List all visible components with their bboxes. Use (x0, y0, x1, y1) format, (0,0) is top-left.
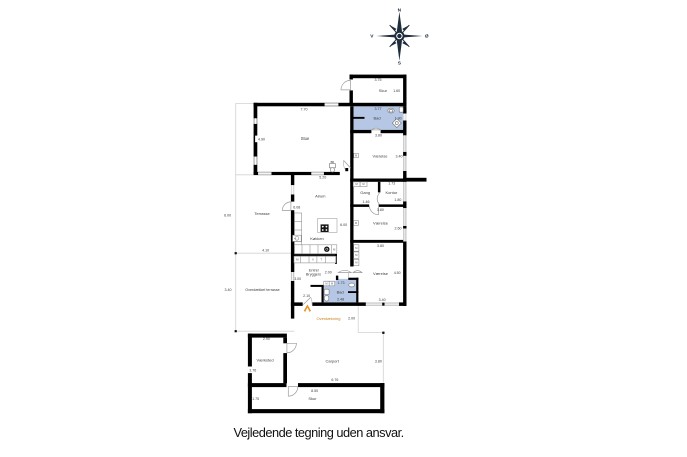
svg-text:3.00: 3.00 (294, 277, 301, 281)
svg-text:Bad: Bad (337, 289, 344, 294)
svg-text:1.60: 1.60 (393, 89, 400, 93)
svg-text:1.73: 1.73 (338, 281, 345, 285)
svg-text:2.00: 2.00 (325, 271, 332, 275)
svg-text:2.90: 2.90 (263, 337, 270, 341)
svg-text:4.50: 4.50 (394, 271, 401, 275)
svg-text:Gang: Gang (360, 190, 370, 195)
svg-text:Entré/: Entré/ (309, 268, 320, 272)
svg-text:M: M (355, 253, 357, 257)
svg-text:M: M (331, 282, 333, 286)
svg-text:3.40: 3.40 (225, 288, 232, 292)
svg-text:3.80: 3.80 (377, 208, 384, 212)
svg-text:7.70: 7.70 (301, 108, 308, 112)
svg-text:Kontor: Kontor (386, 190, 398, 195)
svg-text:Værelse: Værelse (373, 220, 389, 225)
svg-text:6.00: 6.00 (340, 223, 347, 227)
svg-text:3.77: 3.77 (375, 107, 382, 111)
svg-text:2.00: 2.00 (348, 317, 355, 321)
svg-text:Skur: Skur (379, 88, 388, 93)
svg-text:M: M (355, 246, 357, 250)
svg-text:6.76: 6.76 (331, 378, 338, 382)
svg-text:Overdækning: Overdækning (316, 316, 340, 321)
svg-text:3.75: 3.75 (375, 78, 382, 82)
svg-text:1.75: 1.75 (252, 397, 259, 401)
svg-text:M: M (325, 282, 327, 286)
svg-text:Værelse: Værelse (373, 154, 389, 159)
svg-text:8.50: 8.50 (311, 389, 318, 393)
svg-text:T: T (320, 258, 322, 262)
svg-text:Skur: Skur (308, 396, 317, 401)
svg-text:4.90: 4.90 (258, 138, 265, 142)
svg-text:2.10: 2.10 (303, 294, 310, 298)
svg-text:V: V (312, 258, 314, 262)
svg-text:4.10: 4.10 (262, 248, 269, 252)
svg-text:1.90: 1.90 (395, 117, 402, 121)
svg-text:1.73: 1.73 (388, 182, 395, 186)
svg-text:Værelse: Værelse (373, 271, 389, 276)
svg-text:2.48: 2.48 (337, 298, 344, 302)
svg-text:5.20: 5.20 (319, 175, 326, 179)
svg-text:Stue: Stue (301, 136, 310, 141)
svg-text:N: N (398, 8, 402, 14)
svg-text:Køkken: Køkken (310, 236, 324, 241)
svg-text:Vejledende tegning uden ansvar: Vejledende tegning uden ansvar. (233, 425, 403, 440)
svg-text:Bad: Bad (373, 116, 380, 121)
svg-text:3.80: 3.80 (375, 133, 382, 137)
svg-text:Terrasse: Terrasse (254, 211, 270, 216)
svg-text:3.40: 3.40 (379, 298, 386, 302)
svg-text:M: M (355, 221, 357, 225)
svg-text:Carport: Carport (326, 359, 340, 364)
svg-text:BB: BB (331, 160, 335, 164)
svg-text:3.40: 3.40 (396, 155, 403, 159)
svg-text:6.00: 6.00 (224, 213, 231, 217)
svg-text:6.08: 6.08 (293, 205, 300, 209)
svg-text:M: M (356, 182, 358, 186)
svg-text:3.80: 3.80 (375, 360, 382, 364)
svg-text:2.60: 2.60 (395, 227, 402, 231)
svg-text:Værksted: Værksted (256, 357, 273, 362)
svg-text:1.46: 1.46 (363, 200, 370, 204)
svg-text:Bryggers: Bryggers (306, 273, 321, 277)
svg-text:Overdækket terrasse: Overdækket terrasse (245, 288, 279, 292)
svg-text:M: M (355, 153, 357, 157)
svg-text:3.76: 3.76 (249, 369, 256, 373)
svg-text:Ø: Ø (425, 34, 429, 40)
svg-text:1.80: 1.80 (394, 198, 401, 202)
svg-text:Alrum: Alrum (315, 194, 326, 199)
svg-text:M: M (355, 261, 357, 265)
svg-text:M: M (362, 182, 364, 186)
svg-text:3.80: 3.80 (377, 244, 384, 248)
